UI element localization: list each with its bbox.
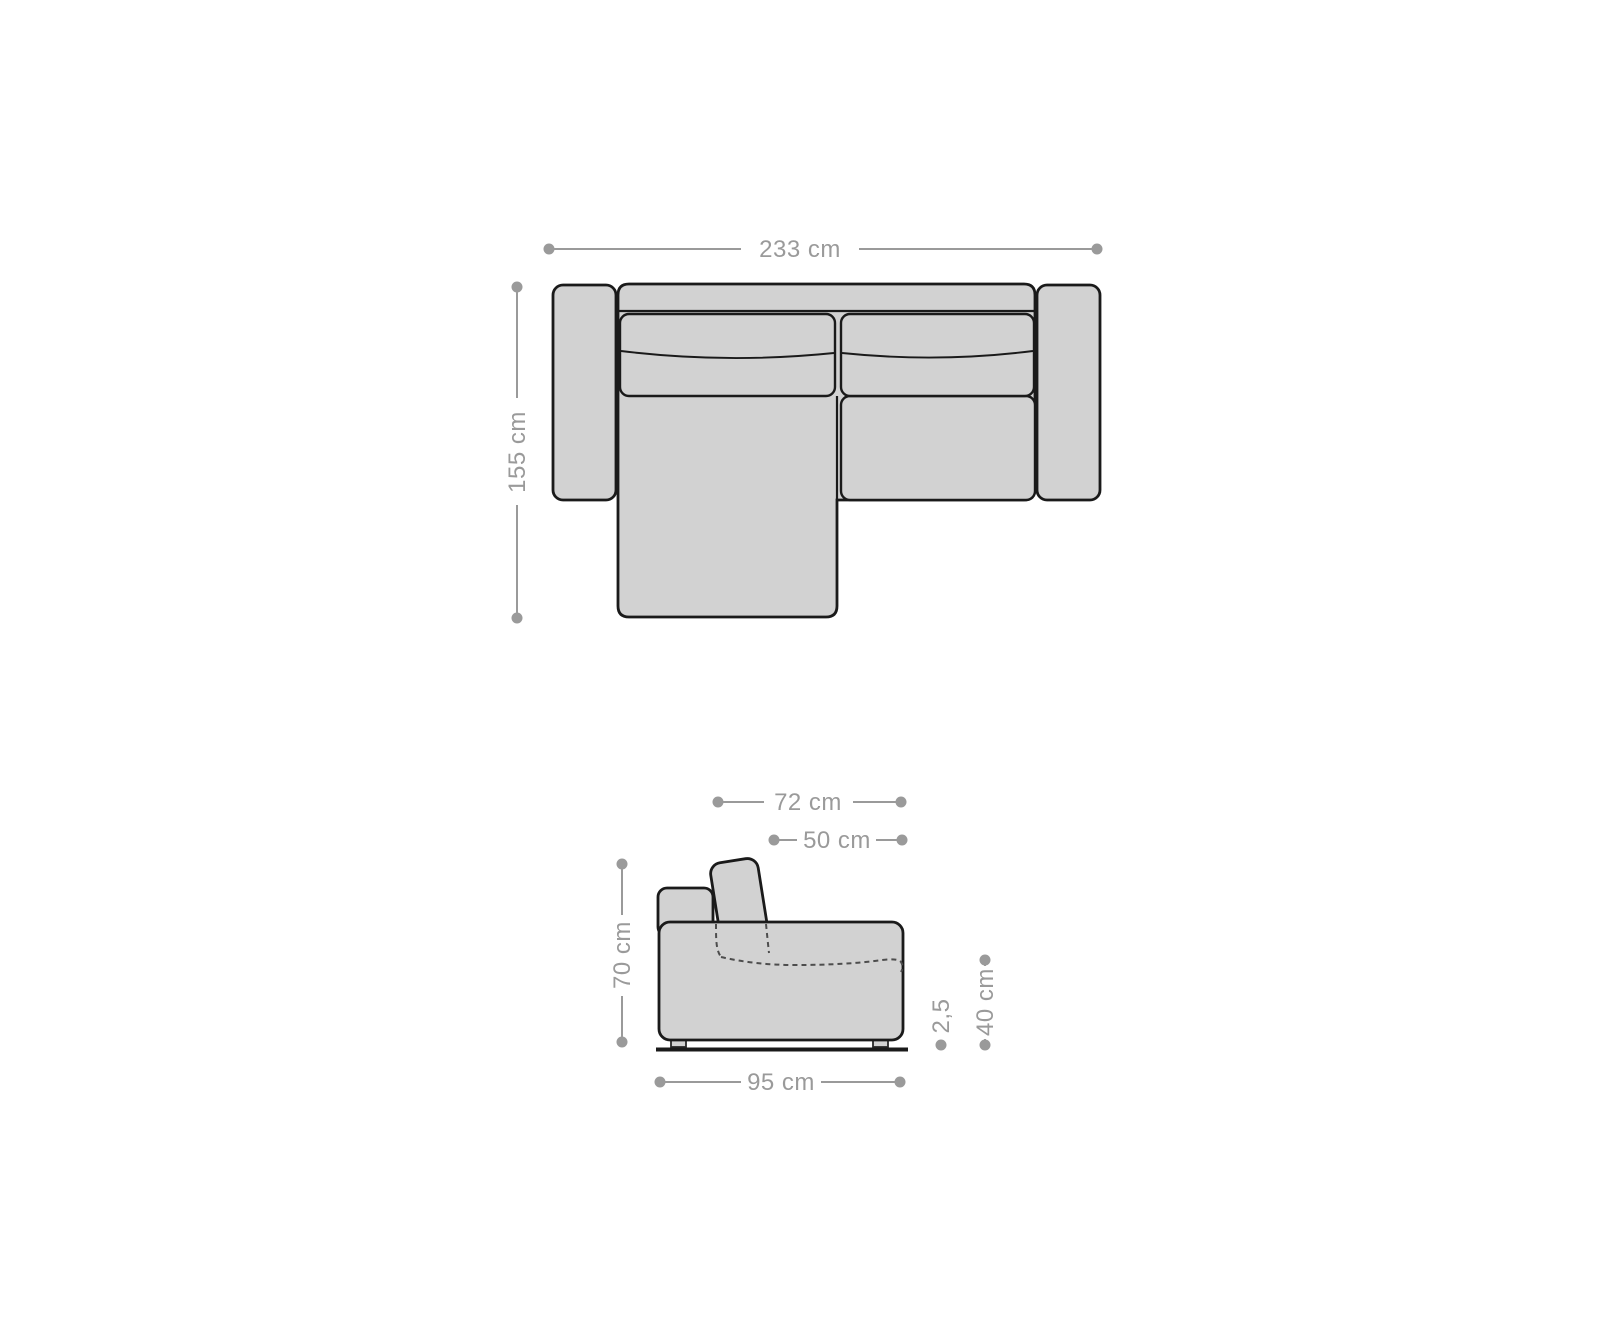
side-seat-height-label: 40 cm bbox=[972, 968, 999, 1036]
side-leg-height-dimension: 2,5 bbox=[928, 999, 955, 1051]
side-base-depth-dimension: 95 cm bbox=[655, 1069, 906, 1096]
dimension-endpoint-dot bbox=[897, 835, 908, 846]
sofa-dimension-diagram: 233 cm 155 cm 72 cm bbox=[0, 0, 1600, 1333]
dimension-endpoint-dot bbox=[980, 1040, 991, 1051]
top-width-dimension: 233 cm bbox=[544, 236, 1103, 263]
dimension-endpoint-dot bbox=[713, 797, 724, 808]
side-height-label: 70 cm bbox=[609, 921, 636, 989]
side-view: 72 cm 50 cm 70 cm bbox=[609, 789, 999, 1096]
dimension-endpoint-dot bbox=[512, 282, 523, 293]
side-seat-depth-label: 50 cm bbox=[803, 827, 871, 854]
side-seat-height-dimension: 40 cm bbox=[972, 955, 999, 1051]
left-armrest bbox=[553, 285, 616, 500]
diagram-svg: 233 cm 155 cm 72 cm bbox=[0, 0, 1600, 1333]
dimension-endpoint-dot bbox=[769, 835, 780, 846]
dimension-endpoint-dot bbox=[617, 1037, 628, 1048]
side-seat-depth-dimension: 50 cm bbox=[769, 827, 908, 854]
side-upper-depth-label: 72 cm bbox=[774, 789, 842, 816]
dimension-endpoint-dot bbox=[896, 797, 907, 808]
dimension-endpoint-dot bbox=[617, 859, 628, 870]
right-seat-section bbox=[841, 396, 1035, 500]
right-armrest bbox=[1037, 285, 1100, 500]
side-body bbox=[659, 922, 903, 1040]
dimension-endpoint-dot bbox=[980, 955, 991, 966]
top-width-label: 233 cm bbox=[759, 236, 841, 263]
top-depth-label: 155 cm bbox=[504, 411, 531, 493]
side-upper-depth-dimension: 72 cm bbox=[713, 789, 907, 816]
side-leg-height-label: 2,5 bbox=[928, 999, 955, 1034]
side-base-depth-label: 95 cm bbox=[747, 1069, 815, 1096]
side-height-dimension: 70 cm bbox=[609, 859, 636, 1048]
dimension-endpoint-dot bbox=[1092, 244, 1103, 255]
top-view: 233 cm 155 cm bbox=[504, 236, 1102, 623]
dimension-endpoint-dot bbox=[936, 1040, 947, 1051]
dimension-endpoint-dot bbox=[655, 1077, 666, 1088]
dimension-endpoint-dot bbox=[895, 1077, 906, 1088]
top-depth-dimension: 155 cm bbox=[504, 282, 531, 624]
dimension-endpoint-dot bbox=[512, 613, 523, 624]
dimension-endpoint-dot bbox=[544, 244, 555, 255]
